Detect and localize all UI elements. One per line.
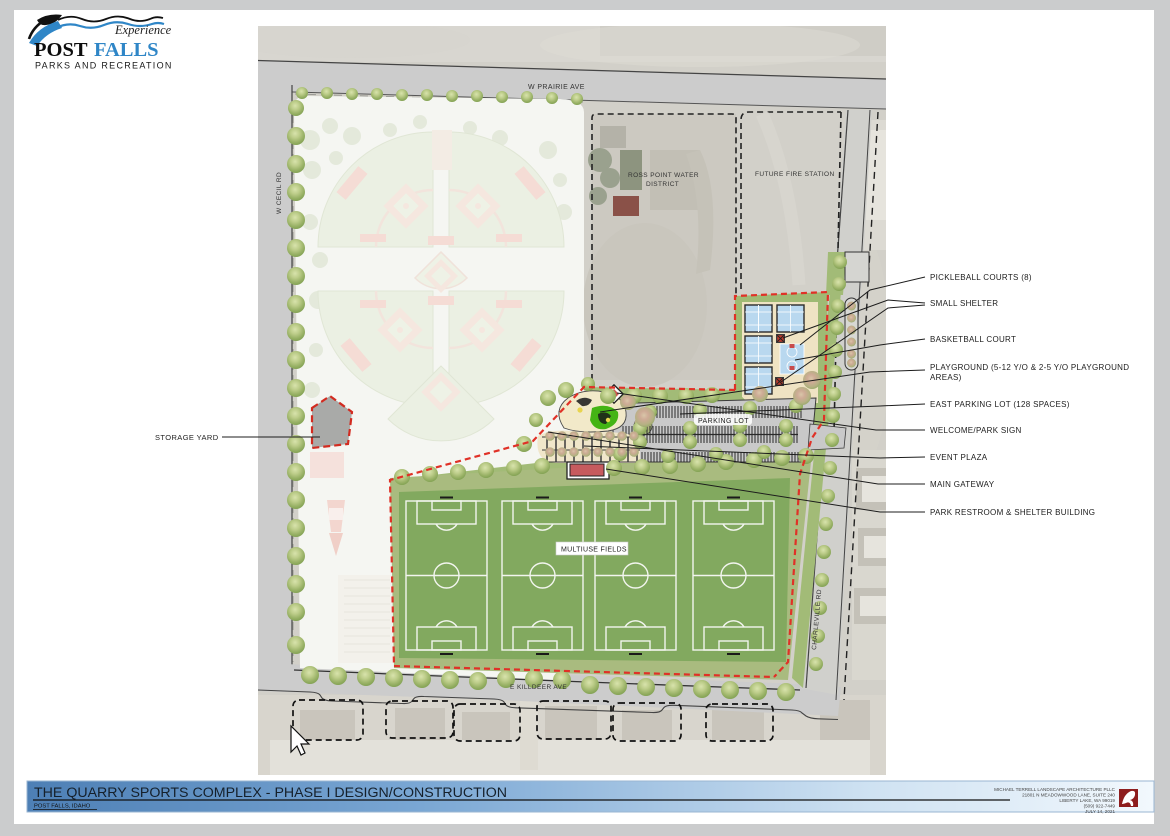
svg-text:21801 N MEADOWWOOD LANE, SUITE: 21801 N MEADOWWOOD LANE, SUITE 240: [1022, 793, 1115, 798]
svg-text:ROSS POINT WATER: ROSS POINT WATER: [628, 172, 699, 179]
svg-text:MAIN GATEWAY: MAIN GATEWAY: [930, 480, 995, 489]
svg-text:(509) 922-7449: (509) 922-7449: [1084, 804, 1116, 809]
svg-text:FALLS: FALLS: [94, 39, 159, 61]
svg-text:LIBERTY LAKE, WA 99019: LIBERTY LAKE, WA 99019: [1059, 798, 1115, 803]
svg-text:STORAGE YARD: STORAGE YARD: [155, 433, 219, 442]
svg-text:EAST PARKING LOT (128 SPACES): EAST PARKING LOT (128 SPACES): [930, 400, 1070, 409]
svg-text:FUTURE FIRE STATION: FUTURE FIRE STATION: [755, 171, 835, 178]
svg-text:Experience: Experience: [114, 23, 172, 37]
svg-text:PICKLEBALL COURTS (8): PICKLEBALL COURTS (8): [930, 273, 1032, 282]
svg-text:POST: POST: [34, 39, 88, 61]
svg-text:BASKETBALL COURT: BASKETBALL COURT: [930, 335, 1016, 344]
svg-text:PLAYGROUND (5-12 Y/O & 2-5 Y/O: PLAYGROUND (5-12 Y/O & 2-5 Y/O PLAYGROUN…: [930, 363, 1129, 372]
svg-text:E KILLDEER AVE: E KILLDEER AVE: [510, 684, 567, 691]
svg-text:DISTRICT: DISTRICT: [646, 181, 679, 188]
svg-text:THE QUARRY SPORTS COMPLEX - PH: THE QUARRY SPORTS COMPLEX - PHASE I DESI…: [34, 785, 507, 801]
svg-text:W CECIL RD: W CECIL RD: [276, 172, 283, 214]
svg-text:SMALL SHELTER: SMALL SHELTER: [930, 299, 998, 308]
svg-text:WELCOME/PARK SIGN: WELCOME/PARK SIGN: [930, 426, 1022, 435]
svg-text:POST FALLS, IDAHO: POST FALLS, IDAHO: [34, 804, 91, 810]
svg-text:PARKS AND RECREATION: PARKS AND RECREATION: [35, 61, 173, 71]
svg-text:PARK RESTROOM & SHELTER BUILDI: PARK RESTROOM & SHELTER BUILDING: [930, 508, 1095, 517]
svg-text:W PRAIRIE AVE: W PRAIRIE AVE: [528, 84, 585, 91]
svg-text:MULTIUSE FIELDS: MULTIUSE FIELDS: [561, 547, 627, 554]
svg-text:AREAS): AREAS): [930, 373, 962, 382]
svg-text:PARKING LOT: PARKING LOT: [698, 418, 749, 425]
svg-text:JULY 14, 2021: JULY 14, 2021: [1085, 809, 1115, 814]
svg-text:EVENT PLAZA: EVENT PLAZA: [930, 453, 988, 462]
svg-text:MICHAEL TERRELL LANDSCAPE ARCH: MICHAEL TERRELL LANDSCAPE ARCHITECTURE P…: [994, 787, 1116, 792]
